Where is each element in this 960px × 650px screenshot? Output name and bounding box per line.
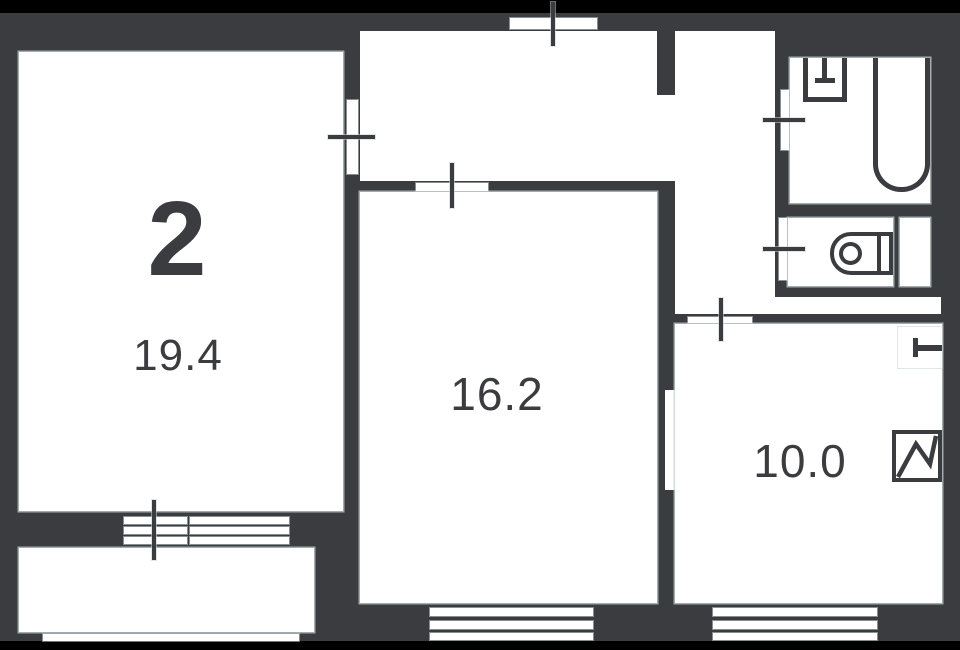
toilet-cistern-line [877,234,881,273]
corridor-vertical-floor [675,31,775,314]
frame-bottom [0,641,960,650]
toilet-bowl [839,242,862,265]
window [430,608,593,616]
hallway-passage-floor [657,95,675,181]
shaft-floor [900,218,930,286]
washbasin-tap [822,58,827,80]
balcony-railing [43,634,299,641]
corridor-horizontal-floor [677,297,941,314]
door-swing-tick [719,298,723,341]
door-swing-tick [551,2,555,46]
door-swing-tick [763,247,805,251]
hallway-floor [360,31,657,181]
frame-top [0,0,960,13]
washbasin-tap [815,78,835,83]
window [190,527,289,534]
wall-niche [665,390,675,490]
room-left-area-value: 19.4 [133,331,223,380]
window [430,621,593,629]
room-right-area-value: 10.0 [753,435,847,487]
radiator-glyph [918,345,942,351]
door-swing-tick [450,163,454,208]
room-middle-area-label: 16.2 [417,371,577,417]
room-right-area-label: 10.0 [720,438,880,484]
door-swing-tick [763,118,805,122]
door-swing-tick [328,135,375,139]
window [713,633,877,640]
balcony-floor [19,548,314,632]
room-middle-area-value: 16.2 [450,368,544,420]
ventilation-shaft-icon [892,430,942,482]
window [430,633,593,640]
door-swing-tick [152,500,156,560]
unit-rooms-value: 2 [148,180,207,298]
bathtub-icon [873,58,930,192]
room-left-area-label: 19.4 [98,334,258,378]
window [190,537,289,544]
floor-plan: 2 19.4 16.2 10.0 [0,0,960,650]
window [190,517,289,524]
zigzag-glyph [896,434,938,478]
unit-rooms-label: 2 [117,186,237,292]
window [713,608,877,616]
window [713,621,877,629]
